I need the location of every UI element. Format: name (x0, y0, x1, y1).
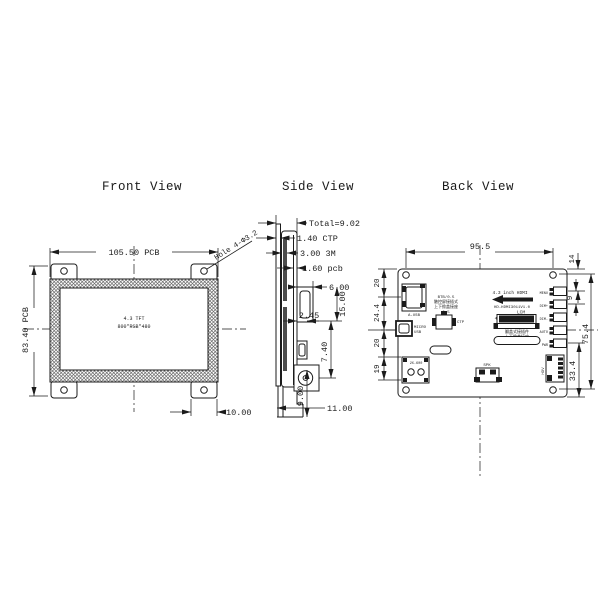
mounting-hole (403, 387, 410, 394)
dim-usb-depth-text: 2.45 (299, 311, 319, 321)
side-view: Side View To (256, 180, 360, 417)
panel-title-label: 4.3 inch HDMI (492, 290, 527, 296)
dim-conn-height-text: 15.00 (338, 291, 348, 317)
screen-resolution-label: 800*RGB*480 (117, 324, 150, 330)
key-label: PWR (542, 344, 549, 348)
front-view: Front View 4.3 TFT 800*RGB*480 (21, 180, 260, 418)
dim-front-tab: 10.00 (170, 399, 252, 418)
screen-size-label: 4.3 TFT (123, 316, 144, 322)
mounting-hole (550, 272, 557, 279)
dim-hole-height-text: 75.4 (581, 324, 591, 344)
micro-usb-label-2: USB (414, 331, 422, 335)
dim-screw-height-text: 7.40 (320, 342, 330, 362)
dim-left-1-text: 20 (374, 278, 382, 288)
side-usb-connector (297, 341, 307, 359)
callout-ctp: 1.40 CTP (297, 234, 338, 244)
technical-drawing: Front View 4.3 TFT 800*RGB*480 (0, 0, 600, 600)
dim-back-hole-span-text: 95.5 (470, 242, 490, 252)
side-view-title: Side View (282, 180, 354, 194)
mounting-hole (61, 387, 68, 394)
dim-front-height: 83.40 PCB (21, 266, 48, 396)
left-slot (430, 346, 451, 354)
dim-top-to-key-text: 14 (569, 254, 577, 264)
dim-left-2-text: 24.4 (374, 304, 382, 323)
hdv-connector-label: HDV (542, 367, 546, 375)
side-lcd-layer (283, 239, 287, 301)
lcm-connector: 4.3 inch HDMI HD-HDMI3011V1.0 LCM 40 1 翻… (492, 290, 540, 345)
speaker-label: SPK (483, 364, 491, 368)
mounting-hole (201, 268, 208, 275)
mounting-hole (61, 268, 68, 275)
key-label: DIM- (540, 318, 548, 322)
lcm-slot (494, 337, 540, 345)
side-callouts: Total=9.02 1.40 CTP 3.00 3M 1.60 pcb (256, 215, 360, 274)
back-view: Back View A-USB BTB/0.5 触控屏接插式 上下掀盖接座 (368, 180, 598, 476)
board-version-label: HD-HDMI3011V1.0 (494, 306, 531, 310)
front-hole-note: Hole 4-Φ3.2 (207, 230, 260, 269)
callout-total: Total=9.02 (309, 219, 360, 229)
ctp-connector-label: CTP (457, 321, 465, 325)
usb-connector-label: A-USB (408, 314, 421, 318)
power-connector: 2X-600 (402, 357, 429, 383)
mounting-hole (201, 387, 208, 394)
dim-front-height-text: 83.40 PCB (21, 307, 31, 353)
side-lcd-layer (283, 307, 287, 371)
front-view-title: Front View (102, 180, 182, 194)
dim-left-3-text: 20 (374, 338, 382, 348)
dim-left-4-text: 19 (374, 364, 382, 373)
callout-3m: 3.00 3M (300, 249, 336, 259)
micro-usb-label-1: MICRO (414, 326, 427, 330)
key-label: AUTO (540, 331, 548, 335)
back-view-title: Back View (442, 180, 514, 194)
front-hole-note-text: Hole 4-Φ3.2 (213, 230, 259, 263)
key-label: DIM+ (540, 305, 548, 309)
dim-bottom-height-text: 9.00 (296, 386, 306, 406)
key-label: MENU (540, 292, 548, 296)
dim-total-depth-text: 11.00 (327, 404, 353, 414)
dim-front-tab-text: 10.00 (226, 408, 252, 418)
power-connector-label: 2X-600 (410, 362, 423, 366)
callout-pcb: 1.60 pcb (302, 264, 343, 274)
mounting-hole (403, 272, 410, 279)
dim-key-to-bottom-text: 33.4 (568, 361, 578, 381)
side-ctp-glass (276, 224, 281, 386)
ctp-note-1: BTB/0.5 (438, 295, 455, 300)
dim-back-hole-span: 95.5 (406, 242, 553, 268)
dim-front-width-text: 105.50 PCB (108, 248, 159, 258)
dim-key-pitch-text: 9 (567, 296, 575, 301)
drawing-canvas: Front View 4.3 TFT 800*RGB*480 (0, 0, 600, 600)
mounting-hole (550, 387, 557, 394)
